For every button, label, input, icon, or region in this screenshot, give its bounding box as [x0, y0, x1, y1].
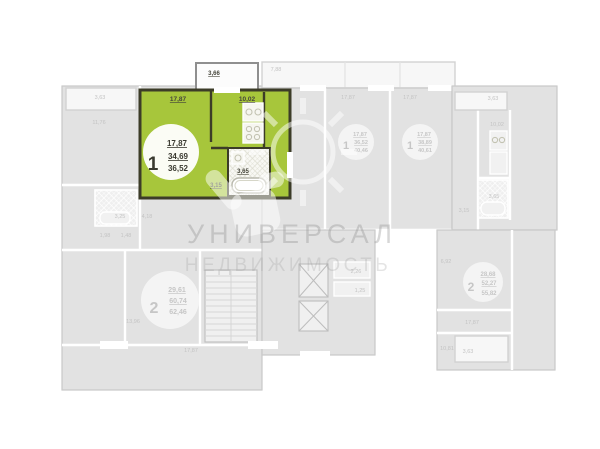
area-label: 11,76: [92, 120, 105, 126]
area: 52,27: [481, 281, 497, 287]
door-opening: [300, 85, 326, 91]
rooms-count: 2: [468, 280, 475, 294]
door-opening: [368, 85, 394, 91]
mid-balcony-strip: 7,88: [262, 62, 455, 88]
area: 60,74: [169, 298, 187, 305]
door-opening: [428, 85, 452, 91]
balcony-door-opening: [214, 87, 240, 93]
area-label: 10,81: [440, 346, 454, 352]
door-opening: [248, 341, 278, 349]
area-label: 10,02: [490, 122, 504, 128]
rooms-count: 1: [343, 140, 349, 152]
area-label: 4,18: [142, 214, 153, 220]
area: 36,52: [354, 140, 368, 146]
area-label: 13,96: [126, 319, 140, 325]
rooms-count: 1: [148, 154, 159, 175]
living-area: 28,68: [480, 272, 496, 278]
area-label: 17,87: [184, 348, 198, 354]
area: 38,89: [418, 140, 432, 146]
bathroom-selected: [228, 148, 270, 196]
washer-icon: [232, 152, 244, 164]
elevator-shaft: [299, 264, 328, 297]
area: 34,69: [168, 152, 189, 161]
staircase: [205, 270, 257, 342]
total-area: 36,52: [168, 164, 189, 173]
rooms-count: 2: [150, 300, 159, 317]
bathroom-area: 3,65: [237, 169, 249, 175]
area-label: 1,48: [121, 233, 132, 239]
living-area: 29,61: [168, 287, 186, 294]
right-wing-top: 3,63 10,02 3,65 3,15: [452, 86, 557, 230]
kitchen-area: 10,02: [239, 96, 256, 103]
area-label: 7,88: [271, 67, 282, 73]
total-area: 40,61: [418, 148, 432, 154]
area-label: 17,87: [403, 95, 417, 101]
bathtub-icon: [481, 202, 505, 215]
total-area: 40,46: [354, 148, 368, 154]
total-area: 62,46: [169, 309, 187, 316]
floorplan-canvas: 3,63 11,76 3,25 4,18 1,98 1,48 29,61 2 6…: [0, 0, 600, 449]
stove-icon: [490, 152, 507, 174]
area-label: 3,63: [95, 95, 106, 101]
balcony-selected: [196, 63, 258, 90]
area-label: 3,25: [115, 214, 126, 220]
area-label: 17,87: [341, 95, 355, 101]
area-label: 3,63: [488, 96, 499, 102]
balcony-right-top: [455, 92, 507, 110]
living-area: 17,87: [167, 139, 188, 148]
area-label: 2,26: [351, 269, 362, 275]
area-label: 3,65: [489, 194, 500, 200]
total-area: 55,82: [481, 291, 497, 297]
room-area: 17,87: [170, 96, 187, 103]
rooms-count: 1: [407, 140, 413, 152]
hall-area: 3,15: [210, 183, 222, 189]
area-label: 3,15: [459, 208, 470, 214]
door-opening: [300, 351, 330, 359]
apartment-right-two-room[interactable]: 6,92 28,68 2 52,27 55,82 17,87 10,81 3,6…: [437, 230, 555, 370]
building-gray-plan: 3,63 11,76 3,25 4,18 1,98 1,48 29,61 2 6…: [62, 62, 557, 390]
balcony-area: 3,66: [208, 71, 220, 77]
area-label: 1,98: [100, 233, 111, 239]
area-label: 17,87: [465, 320, 479, 326]
floorplan-svg: 3,63 11,76 3,25 4,18 1,98 1,48 29,61 2 6…: [0, 0, 600, 449]
kitchen-fixtures: [243, 103, 263, 143]
elevator-shaft: [299, 301, 328, 331]
entry-door-opening: [287, 152, 293, 178]
living-area: 17,87: [417, 132, 431, 138]
area-label: 3,63: [463, 349, 474, 355]
living-area: 17,87: [353, 132, 367, 138]
area-label: 6,92: [441, 259, 452, 265]
area-label: 1,25: [355, 288, 366, 294]
door-opening: [100, 341, 128, 349]
stove-icon: [243, 123, 263, 143]
